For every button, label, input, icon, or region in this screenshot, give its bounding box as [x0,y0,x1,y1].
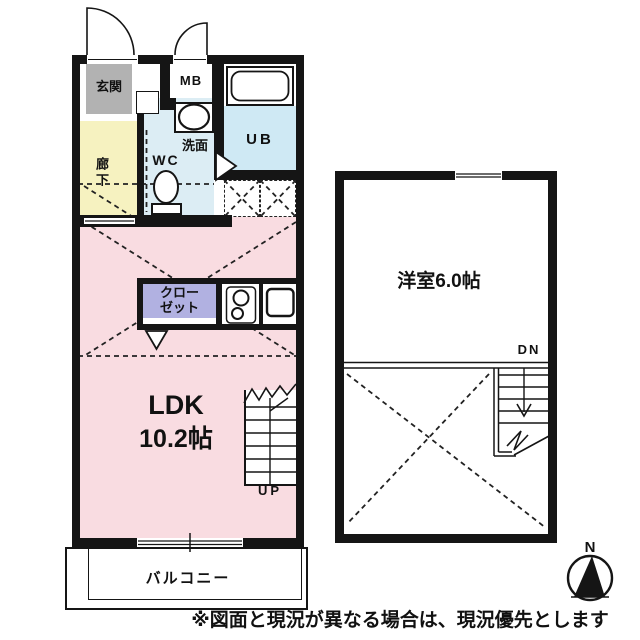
balcony-label: バルコニー [118,570,258,587]
wall [335,534,557,543]
wall [335,171,557,180]
wall [214,102,224,170]
basin-counter [174,102,214,133]
ldk-window [137,538,243,547]
western-room-label: 洋室6.0帖 [358,271,520,293]
stove-counter [222,284,259,324]
toilet-tank [151,203,182,215]
floorplan: 玄関 MB UB 洗面 WC 廊下 クロー ゼット LDK 10.2帖 UP バ… [0,0,640,640]
disclaimer-text: ※図面と現況が異なる場合は、現況優先とします [170,610,630,632]
void-x-box [260,180,296,217]
staircase-down [344,363,549,457]
closet-label-line2: ゼット [143,301,216,316]
closet-track [143,318,216,324]
closet-label-line1: クロー [143,286,216,301]
stairs-down-label: DN [506,343,552,358]
ldk-name: LDK [96,390,256,421]
wall [160,55,170,102]
door-swing-arc-entrance [87,8,134,55]
ldk-label: LDK 10.2帖 [96,390,256,454]
mb-door-opening [173,55,207,64]
entrance-door-opening [87,55,138,64]
closet-label: クロー ゼット [143,286,216,316]
room-ub-tub-area [224,64,296,106]
void-x-box [224,180,260,217]
sink-counter [263,284,296,324]
ub-label: UB [224,131,296,148]
shoe-cabinet [136,91,159,114]
stairs-up-label: UP [244,484,296,499]
second-floor-window [455,171,502,180]
wall [335,171,344,543]
compass-north-label: N [576,539,604,556]
mb-label: MB [170,74,212,89]
rouka-sliding-door [84,218,135,224]
compass-icon [568,556,612,600]
wall [212,55,224,106]
door-swing-arc-mb [175,23,207,55]
wall [214,170,304,180]
wc-label: WC [146,152,186,168]
wall [137,98,144,222]
genkan-label: 玄関 [86,80,132,95]
rouka-label: 廊下 [88,145,108,201]
wall [72,55,80,547]
ldk-size: 10.2帖 [96,425,256,454]
